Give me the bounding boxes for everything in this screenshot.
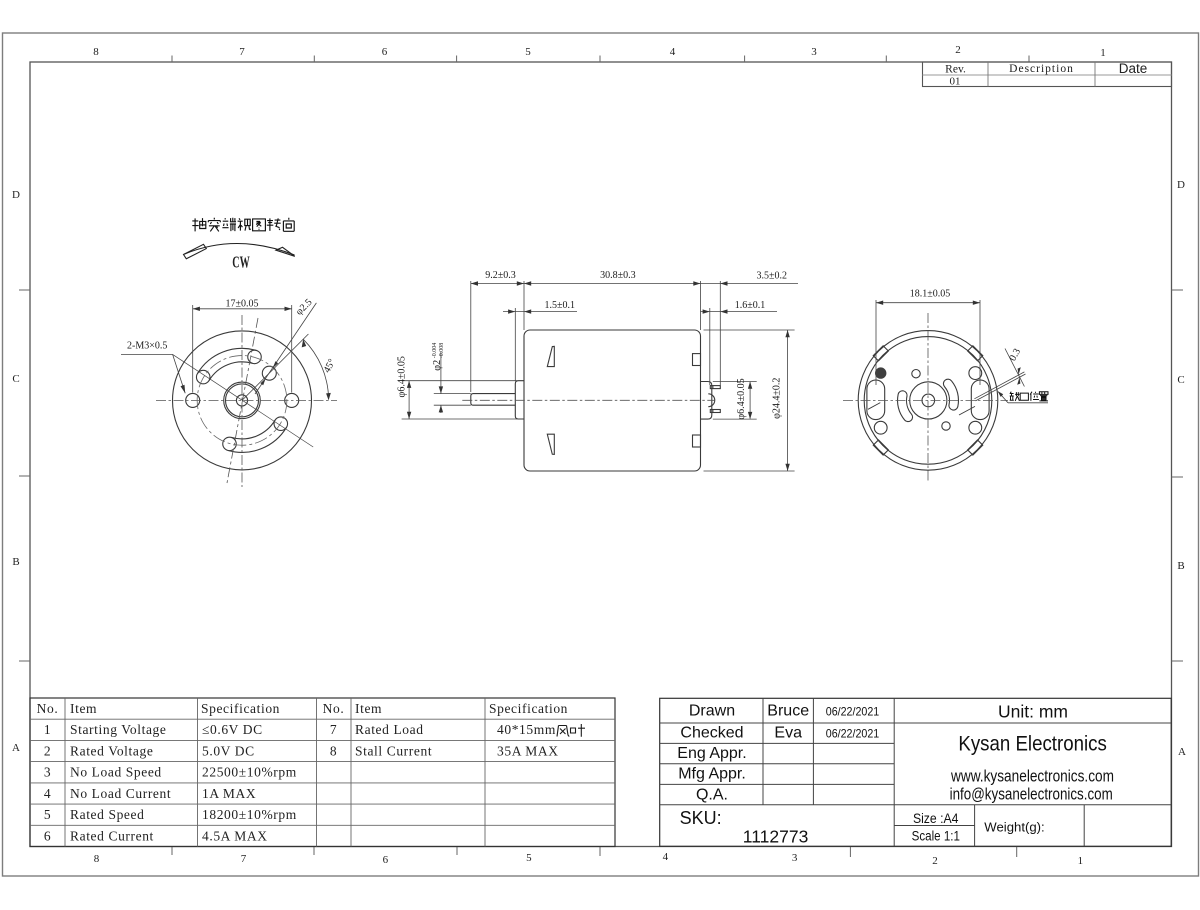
svg-text:1112773: 1112773	[743, 826, 809, 846]
svg-text:06/22/2021: 06/22/2021	[826, 727, 880, 741]
svg-text:40*15mm: 40*15mm	[497, 722, 556, 737]
svg-text:17±0.05: 17±0.05	[226, 299, 259, 310]
svg-text:www.kysanelectronics.com: www.kysanelectronics.com	[950, 766, 1114, 785]
svg-text:Eng Appr.: Eng Appr.	[677, 745, 746, 762]
svg-text:Scale 1:1: Scale 1:1	[912, 829, 960, 844]
svg-text:Unit: mm: Unit: mm	[998, 701, 1068, 721]
svg-text:φ6.4±0.05: φ6.4±0.05	[736, 378, 747, 419]
svg-text:SKU:: SKU:	[680, 808, 722, 828]
svg-text:1: 1	[1078, 855, 1084, 867]
svg-text:18200±10%rpm: 18200±10%rpm	[202, 807, 297, 822]
svg-text:8: 8	[93, 46, 99, 58]
svg-text:6: 6	[44, 828, 51, 843]
svg-text:-0.004: -0.004	[432, 343, 438, 359]
svg-text:Rev.: Rev.	[945, 64, 966, 76]
svg-text:Rated Voltage: Rated Voltage	[70, 743, 153, 758]
svg-text:6: 6	[383, 854, 389, 866]
svg-text:Specification: Specification	[201, 701, 280, 716]
svg-text:No Load Current: No Load Current	[70, 786, 171, 801]
svg-text:A: A	[1178, 746, 1186, 758]
svg-text:8: 8	[94, 853, 100, 865]
svg-text:9.2±0.3: 9.2±0.3	[485, 270, 516, 281]
svg-text:Rated Load: Rated Load	[355, 722, 424, 737]
svg-text:Eva: Eva	[774, 725, 802, 742]
svg-text:Rated Current: Rated Current	[70, 828, 154, 843]
svg-text:1: 1	[1100, 47, 1106, 59]
svg-text:C: C	[12, 373, 19, 385]
svg-text:φ24.4±0.2: φ24.4±0.2	[772, 378, 783, 419]
svg-text:3.5±0.2: 3.5±0.2	[757, 271, 788, 282]
svg-text:Stall Current: Stall Current	[355, 743, 432, 758]
svg-text:No.: No.	[323, 701, 345, 716]
svg-text:≤0.6V DC: ≤0.6V DC	[202, 722, 263, 737]
svg-text:30.8±0.3: 30.8±0.3	[600, 270, 636, 281]
svg-text:35A MAX: 35A MAX	[497, 743, 559, 758]
svg-text:φ2: φ2	[432, 360, 443, 371]
svg-text:2: 2	[932, 855, 938, 867]
svg-text:5: 5	[525, 46, 531, 58]
svg-text:7: 7	[330, 722, 337, 737]
svg-text:5: 5	[44, 807, 51, 822]
svg-text:Starting Voltage: Starting Voltage	[70, 722, 166, 737]
svg-text:4: 4	[44, 786, 51, 801]
svg-text:8: 8	[330, 743, 337, 758]
svg-text:Size :A4: Size :A4	[913, 811, 959, 826]
svg-text:Bruce: Bruce	[767, 703, 809, 720]
svg-text:φ6.4±0.05: φ6.4±0.05	[397, 356, 408, 397]
svg-text:No.: No.	[37, 701, 59, 716]
svg-text:2: 2	[955, 44, 961, 56]
svg-text:info@kysanelectronics.com: info@kysanelectronics.com	[950, 785, 1113, 804]
svg-text:Item: Item	[355, 701, 382, 716]
svg-text:6: 6	[382, 46, 388, 58]
svg-text:7: 7	[239, 46, 245, 58]
svg-text:A: A	[12, 742, 20, 754]
svg-text:Checked: Checked	[680, 725, 743, 742]
svg-text:Mfg Appr.: Mfg Appr.	[678, 766, 746, 783]
svg-text:Q.A.: Q.A.	[696, 786, 728, 803]
svg-text:2-M3×0.5: 2-M3×0.5	[127, 341, 167, 352]
svg-text:3: 3	[792, 852, 798, 864]
svg-text:5: 5	[526, 852, 532, 864]
svg-text:18.1±0.05: 18.1±0.05	[910, 289, 951, 300]
svg-text:1: 1	[44, 722, 51, 737]
svg-text:D: D	[1177, 179, 1185, 191]
svg-text:3: 3	[44, 765, 51, 780]
svg-text:C: C	[1177, 374, 1184, 386]
svg-text:Weight(g):: Weight(g):	[984, 820, 1044, 835]
svg-text:Item: Item	[70, 701, 97, 716]
svg-text:22500±10%rpm: 22500±10%rpm	[202, 765, 297, 780]
svg-text:B: B	[12, 556, 19, 568]
svg-text:Specification: Specification	[489, 701, 568, 716]
svg-text:Description: Description	[1009, 63, 1074, 75]
svg-text:No Load Speed: No Load Speed	[70, 765, 162, 780]
svg-text:1.6±0.1: 1.6±0.1	[735, 300, 766, 311]
svg-text:Date: Date	[1119, 61, 1148, 76]
svg-text:D: D	[12, 189, 20, 201]
svg-text:01: 01	[950, 76, 961, 88]
svg-text:1A MAX: 1A MAX	[202, 786, 256, 801]
svg-text:4.5A MAX: 4.5A MAX	[202, 828, 268, 843]
svg-text:06/22/2021: 06/22/2021	[826, 705, 880, 719]
svg-text:2: 2	[44, 743, 51, 758]
svg-text:4: 4	[670, 46, 676, 58]
svg-text:5.0V DC: 5.0V DC	[202, 743, 255, 758]
svg-text:3: 3	[811, 46, 817, 58]
svg-text:Kysan Electronics: Kysan Electronics	[958, 733, 1106, 756]
svg-text:B: B	[1177, 560, 1184, 572]
svg-text:4: 4	[663, 851, 669, 863]
svg-text:-0.008: -0.008	[439, 343, 445, 359]
svg-text:7: 7	[241, 853, 247, 865]
svg-text:CW: CW	[232, 253, 250, 272]
svg-text:1.5±0.1: 1.5±0.1	[545, 300, 576, 311]
svg-text:Rated Speed: Rated Speed	[70, 807, 144, 822]
svg-text:Drawn: Drawn	[689, 703, 735, 720]
